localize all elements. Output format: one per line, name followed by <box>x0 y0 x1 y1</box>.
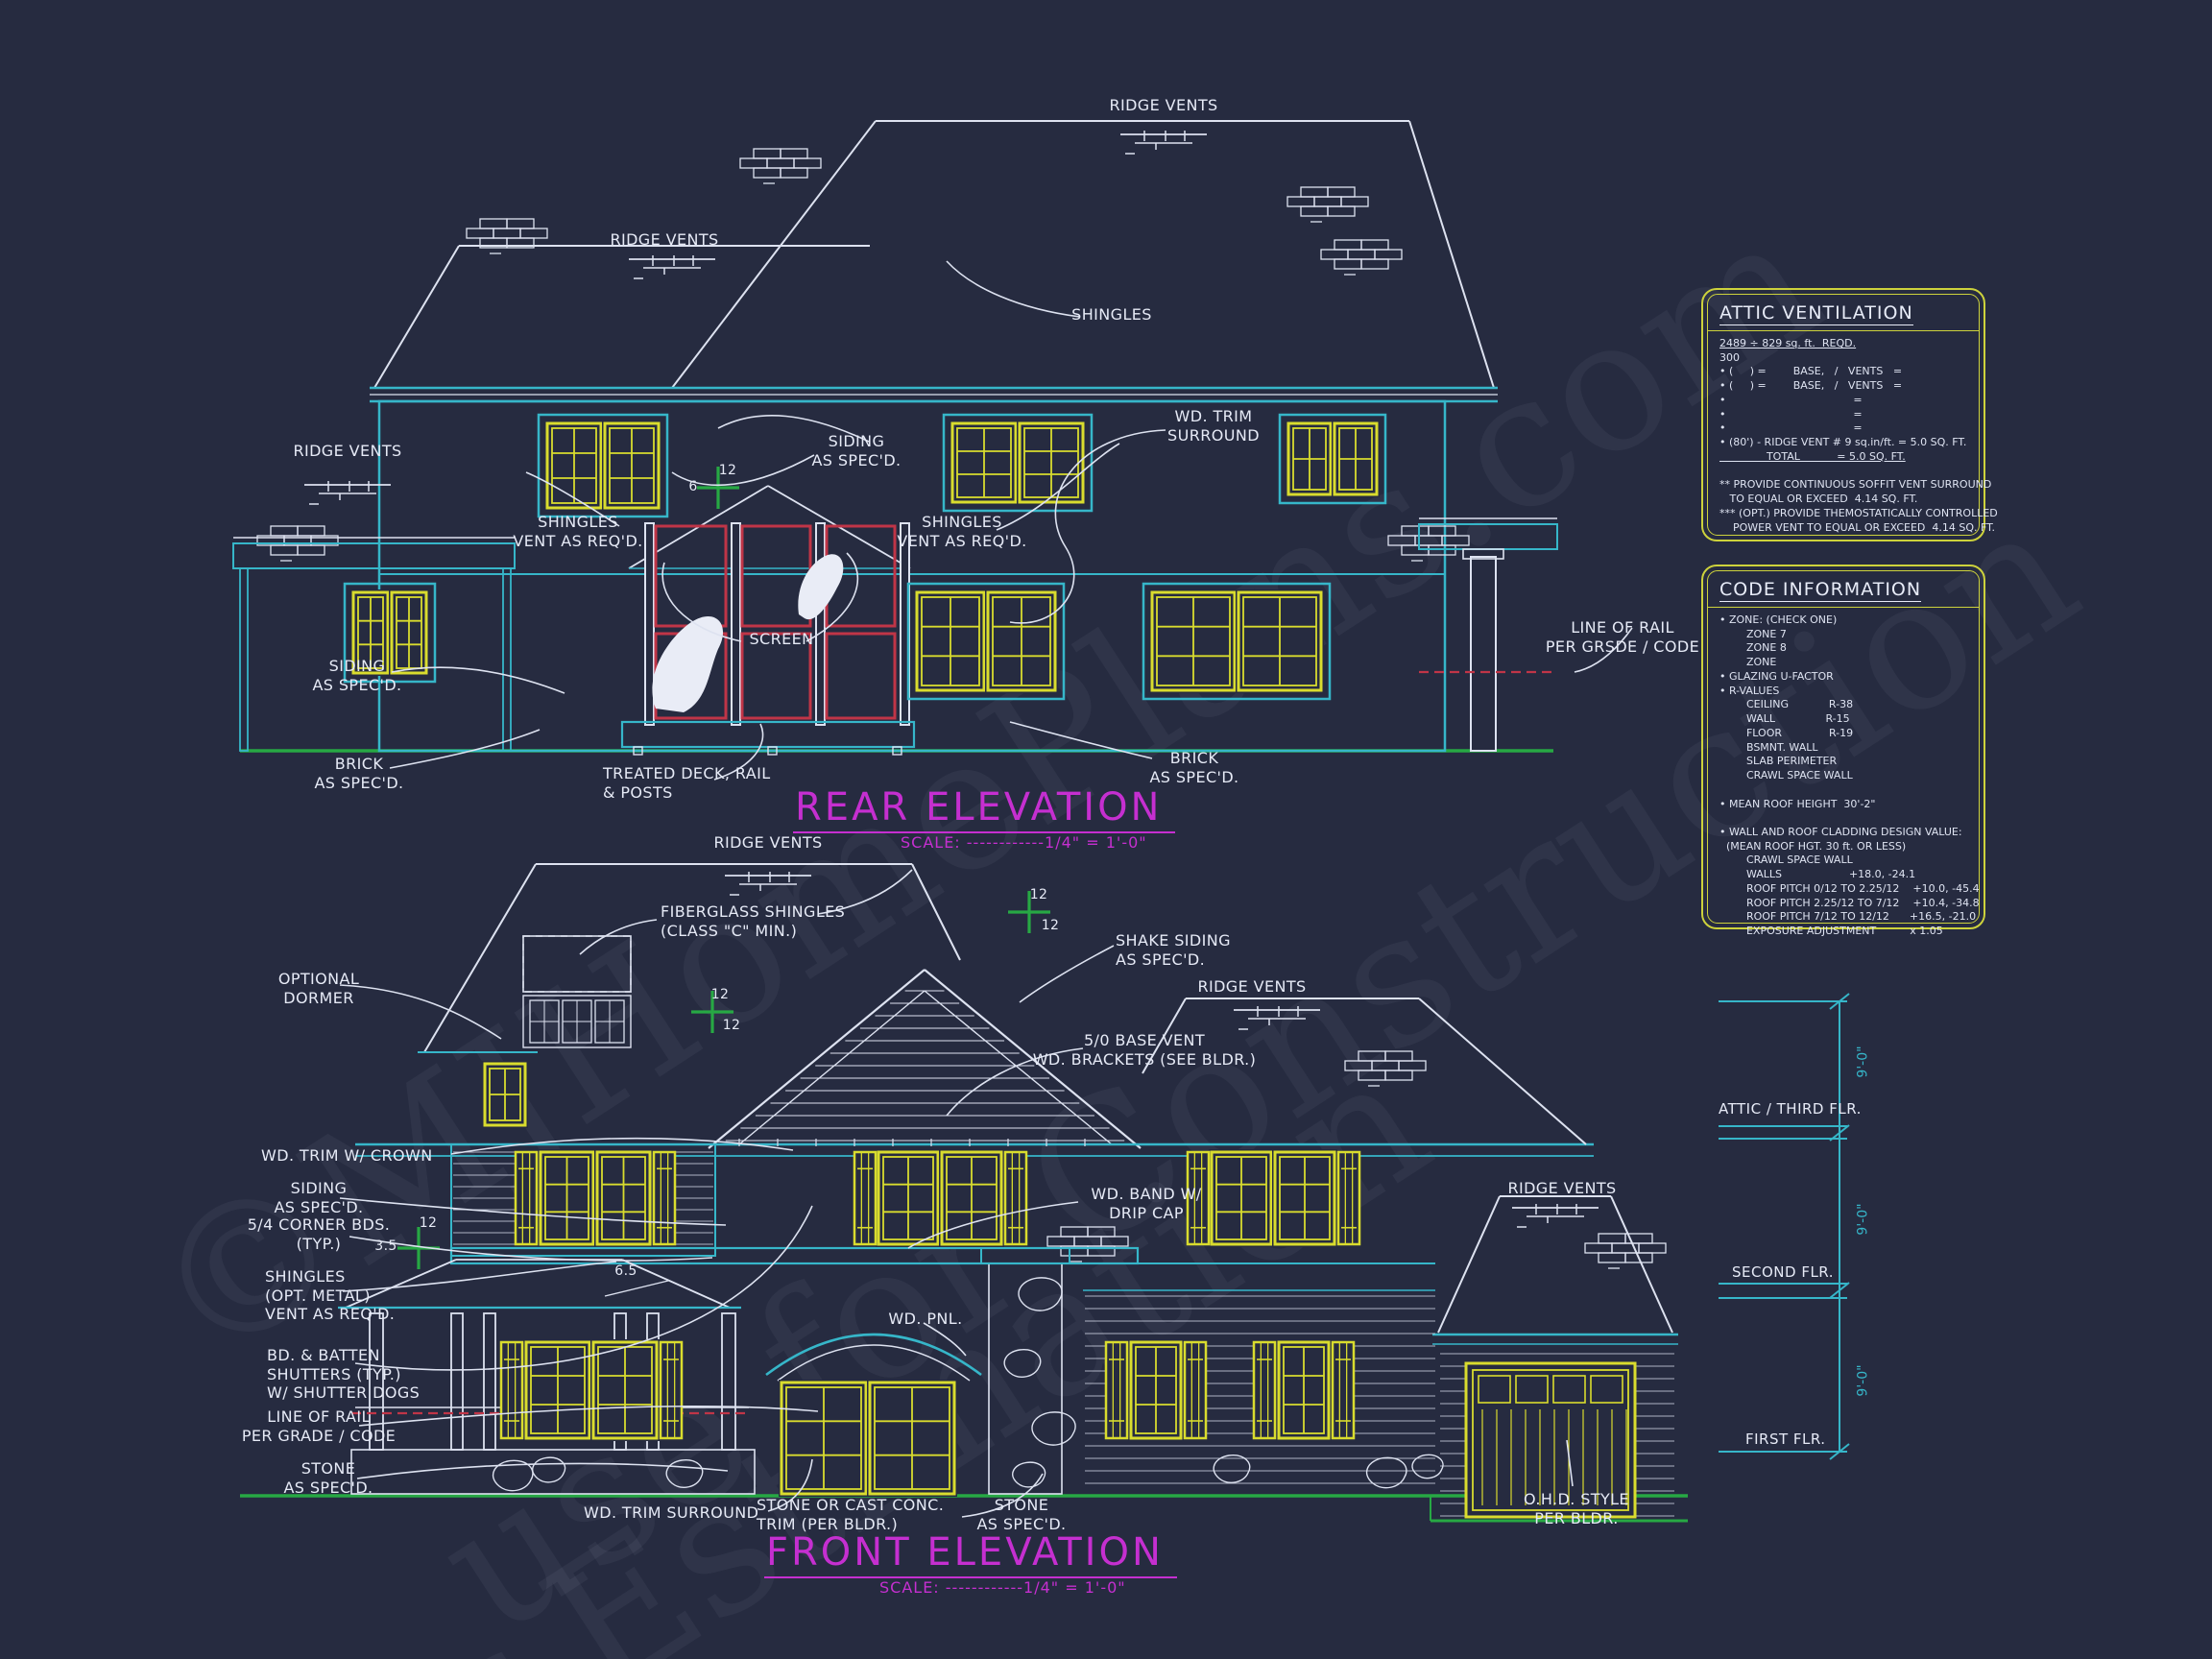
label-ridge-vents: RIDGE VENTS <box>610 230 718 250</box>
label-ridge-vents: RIDGE VENTS <box>293 442 401 461</box>
label-shingles-opt-metal: SHINGLES (OPT. METAL) VENT AS REQ'D. <box>265 1267 395 1324</box>
label-fiberglass-shingles: FIBERGLASS SHINGLES (CLASS "C" MIN.) <box>661 902 845 940</box>
code-information-lines: • ZONE: (CHECK ONE) ZONE 7 ZONE 8 ZONE• … <box>1719 613 1967 939</box>
panel-line: TOTAL = 5.0 SQ. FT. <box>1719 450 1967 465</box>
label-ridge-vents: RIDGE VENTS <box>1197 977 1306 997</box>
marker-attic-third-floor: ATTIC / THIRD FLR. <box>1719 1100 1862 1118</box>
panel-line: ** PROVIDE CONTINUOUS SOFFIT VENT SURROU… <box>1719 478 1967 493</box>
panel-line: ZONE 7 <box>1719 628 1967 642</box>
label-shingles-vent: SHINGLES VENT AS REQ'D. <box>897 513 1026 550</box>
label-wd-trim-crown: WD. TRIM W/ CROWN <box>261 1146 433 1166</box>
label-wd-trim-surround: WD. TRIM SURROUND <box>584 1503 758 1523</box>
attic-ventilation-title: ATTIC VENTILATION <box>1719 302 1913 325</box>
panel-line: 300 <box>1719 351 1967 366</box>
code-information-panel-inner: CODE INFORMATION • ZONE: (CHECK ONE) ZON… <box>1707 570 1980 924</box>
front-elevation-title: FRONT ELEVATION <box>764 1530 1177 1578</box>
panel-line: • = <box>1719 394 1967 408</box>
panel-line: EXPOSURE ADJUSTMENT x 1.05 <box>1719 925 1967 939</box>
label-stone: STONE AS SPEC'D. <box>283 1459 373 1497</box>
panel-line: CEILING R-38 <box>1719 698 1967 712</box>
panel-line: BSMNT. WALL <box>1719 741 1967 756</box>
label-siding: SIDING AS SPEC'D. <box>274 1179 363 1216</box>
label-ridge-vents: RIDGE VENTS <box>1507 1179 1616 1198</box>
panel-line: • (80') - RIDGE VENT # 9 sq.in/ft. = 5.0… <box>1719 436 1967 450</box>
pitch-label: 12 <box>1042 918 1060 934</box>
label-optional-dormer: OPTIONAL DORMER <box>278 970 359 1007</box>
pitch-label: 12 <box>723 1018 741 1034</box>
label-wd-pnl: WD. PNL. <box>888 1310 962 1329</box>
panel-line: SLAB PERIMETER <box>1719 755 1967 769</box>
panel-line: TO EQUAL OR EXCEED 4.14 SQ. FT. <box>1719 493 1967 507</box>
panel-line: • = <box>1719 421 1967 436</box>
panel-line: WALL R-15 <box>1719 712 1967 727</box>
blueprint-sheet: ©MJHomePlans.com use for Construction us… <box>0 0 2212 1659</box>
panel-line: (MEAN ROOF HGT. 30 ft. OR LESS) <box>1719 840 1967 854</box>
attic-ventilation-panel: ATTIC VENTILATION 2489 ÷ 829 sq. ft. REQ… <box>1701 288 1985 541</box>
attic-ventilation-lines: 2489 ÷ 829 sq. ft. REQD.300• ( ) = BASE,… <box>1719 337 1967 535</box>
front-elevation-scale: SCALE: ------------1/4" = 1'-0" <box>879 1578 1126 1597</box>
panel-line: FLOOR R-19 <box>1719 727 1967 741</box>
pitch-label: 12 <box>719 463 737 479</box>
pitch-label: 6.5 <box>614 1263 637 1280</box>
label-shingles: SHINGLES <box>1071 305 1152 325</box>
label-wd-trim-surround: WD. TRIM SURROUND <box>1167 407 1260 445</box>
label-line-of-rail: LINE OF RAIL PER GRADE / CODE <box>242 1407 396 1445</box>
panel-line: ROOF PITCH 2.25/12 TO 7/12 +10.4, -34.8 <box>1719 897 1967 911</box>
panel-divider <box>1708 607 1979 608</box>
panel-line: • R-VALUES <box>1719 685 1967 699</box>
label-screen: SCREEN <box>749 630 813 649</box>
label-shake-siding: SHAKE SIDING AS SPEC'D. <box>1116 931 1231 969</box>
panel-line: • MEAN ROOF HEIGHT 30'-2" <box>1719 798 1967 812</box>
panel-line: • = <box>1719 408 1967 422</box>
label-ridge-vents: RIDGE VENTS <box>713 833 822 853</box>
panel-line: ROOF PITCH 0/12 TO 2.25/12 +10.0, -45.4 <box>1719 882 1967 897</box>
label-bd-batten-shutters: BD. & BATTEN SHUTTERS (TYP.) W/ SHUTTER … <box>267 1346 420 1403</box>
panel-line: • WALL AND ROOF CLADDING DESIGN VALUE: <box>1719 826 1967 840</box>
label-wd-band: WD. BAND W/ DRIP CAP <box>1091 1185 1201 1222</box>
pitch-label: 12 <box>1030 887 1048 903</box>
label-shingles-vent: SHINGLES VENT AS REQ'D. <box>513 513 642 550</box>
dimension-text: 9'-0" <box>1856 1046 1871 1077</box>
panel-line <box>1719 783 1967 798</box>
code-information-title: CODE INFORMATION <box>1719 579 1921 602</box>
panel-line: WALLS +18.0, -24.1 <box>1719 868 1967 882</box>
label-siding: SIDING AS SPEC'D. <box>312 657 401 694</box>
panel-line: • ZONE: (CHECK ONE) <box>1719 613 1967 628</box>
rear-elevation-scale: SCALE: ------------1/4" = 1'-0" <box>901 833 1147 852</box>
dimension-text: 9'-0" <box>1856 1364 1871 1396</box>
dimension-text: 9'-0" <box>1856 1203 1871 1235</box>
label-base-vent: 5/0 BASE VENT WD. BRACKETS (SEE BLDR.) <box>1033 1031 1257 1069</box>
marker-second-floor: SECOND FLR. <box>1732 1263 1834 1281</box>
label-brick: BRICK AS SPEC'D. <box>314 755 403 792</box>
panel-line: • GLAZING U-FACTOR <box>1719 670 1967 685</box>
panel-divider <box>1708 330 1979 331</box>
panel-line <box>1719 465 1967 479</box>
panel-line: POWER VENT TO EQUAL OR EXCEED 4.14 SQ. F… <box>1719 521 1967 536</box>
pitch-label: 6 <box>688 479 697 495</box>
panel-line <box>1719 811 1967 826</box>
marker-first-floor: FIRST FLR. <box>1745 1431 1826 1448</box>
panel-line: 2489 ÷ 829 sq. ft. REQD. <box>1719 337 1967 351</box>
label-ridge-vents: RIDGE VENTS <box>1109 96 1217 115</box>
label-line-of-rail: LINE OF RAIL PER GRSDE / CODE <box>1546 618 1699 656</box>
attic-ventilation-panel-inner: ATTIC VENTILATION 2489 ÷ 829 sq. ft. REQ… <box>1707 294 1980 536</box>
label-corner-bds: 5/4 CORNER BDS. (TYP.) <box>248 1215 391 1253</box>
panel-line: ZONE 8 <box>1719 641 1967 656</box>
panel-line: *** (OPT.) PROVIDE THEMOSTATICALLY CONTR… <box>1719 507 1967 521</box>
panel-line: • ( ) = BASE, / VENTS = <box>1719 365 1967 379</box>
pitch-label: 12 <box>420 1215 438 1232</box>
panel-line: CRAWL SPACE WALL <box>1719 854 1967 868</box>
label-treated-deck: TREATED DECK, RAIL & POSTS <box>603 764 771 802</box>
label-stone: STONE AS SPEC'D. <box>976 1496 1066 1533</box>
panel-line: ROOF PITCH 7/12 TO 12/12 +16.5, -21.0 <box>1719 910 1967 925</box>
code-information-panel: CODE INFORMATION • ZONE: (CHECK ONE) ZON… <box>1701 565 1985 929</box>
panel-line: • ( ) = BASE, / VENTS = <box>1719 379 1967 394</box>
label-ohd-style: O.H.D. STYLE PER BLDR. <box>1524 1490 1629 1527</box>
pitch-label: 12 <box>711 987 730 1003</box>
label-siding: SIDING AS SPEC'D. <box>811 432 901 469</box>
label-brick: BRICK AS SPEC'D. <box>1149 749 1238 786</box>
panel-line: ZONE <box>1719 656 1967 670</box>
label-stone-cast-conc: STONE OR CAST CONC. TRIM (PER BLDR.) <box>757 1496 944 1533</box>
rear-elevation-title: REAR ELEVATION <box>793 785 1175 833</box>
pitch-label: 3.5 <box>374 1238 397 1255</box>
panel-line: CRAWL SPACE WALL <box>1719 769 1967 783</box>
